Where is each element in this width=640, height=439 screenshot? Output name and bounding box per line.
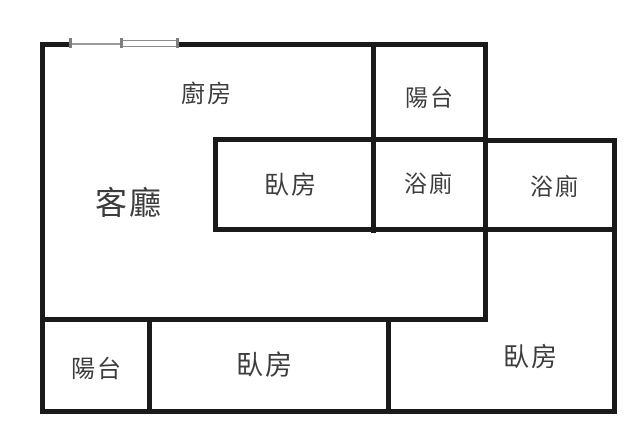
room-label-balcony-top: 陽台: [405, 87, 455, 110]
room-label-bedroom-bottom-middle: 臥房: [236, 353, 294, 380]
bottom-wall: [40, 409, 617, 414]
room-label-bathroom-right: 浴廁: [530, 176, 580, 199]
bathroom-right-top-wall: [483, 138, 617, 143]
bedroom-top-left-wall: [213, 137, 218, 232]
window-tick-0: [69, 38, 72, 48]
balcony-bathroom-vertical-wall: [483, 42, 488, 322]
window-pane: [121, 40, 178, 47]
right-wall: [612, 138, 617, 414]
floorplan: 廚房陽台臥房浴廁浴廁客廳陽台臥房臥房: [0, 0, 640, 439]
room-label-bedroom-bottom-right: 臥房: [503, 345, 559, 371]
room-label-balcony-bottom: 陽台: [71, 358, 123, 382]
rooms-bottom-horizontal-wall: [213, 227, 617, 232]
balcony-bedroom-vertical-wall: [147, 317, 152, 414]
room-label-bathroom-left: 浴廁: [404, 173, 454, 196]
window-tick-2: [176, 38, 179, 48]
room-label-kitchen: 廚房: [181, 83, 233, 107]
bedroom-top-top-wall: [213, 137, 488, 142]
room-label-bedroom-top-middle: 臥房: [264, 174, 318, 199]
living-bottom-horizontal-wall: [40, 317, 488, 322]
top-wall-right-segment: [176, 42, 488, 47]
bedroom-bedroom-vertical-wall: [386, 317, 391, 414]
left-wall: [40, 42, 45, 414]
room-label-living-room: 客廳: [95, 187, 163, 219]
window-tick-1: [120, 38, 123, 48]
